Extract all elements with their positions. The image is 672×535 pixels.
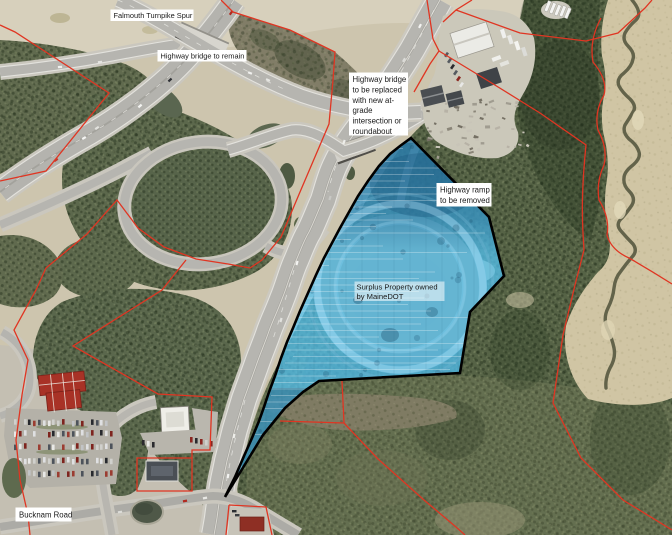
svg-text:to be replaced: to be replaced: [353, 85, 402, 94]
svg-text:intersection or: intersection or: [353, 117, 402, 126]
svg-text:with new at-: with new at-: [352, 96, 395, 105]
svg-text:to be removed: to be removed: [440, 196, 490, 205]
svg-text:Highway bridge: Highway bridge: [353, 75, 407, 84]
svg-text:grade: grade: [353, 106, 373, 115]
svg-text:Highway ramp: Highway ramp: [440, 186, 490, 195]
svg-text:Bucknam Road: Bucknam Road: [19, 511, 72, 520]
svg-text:Falmouth Turnpike Spur: Falmouth Turnpike Spur: [114, 11, 193, 20]
svg-text:by MaineDOT: by MaineDOT: [357, 292, 404, 301]
svg-text:Highway bridge to remain: Highway bridge to remain: [161, 52, 245, 61]
svg-text:roundabout: roundabout: [353, 127, 393, 136]
svg-text:Surplus Property owned: Surplus Property owned: [357, 283, 438, 292]
